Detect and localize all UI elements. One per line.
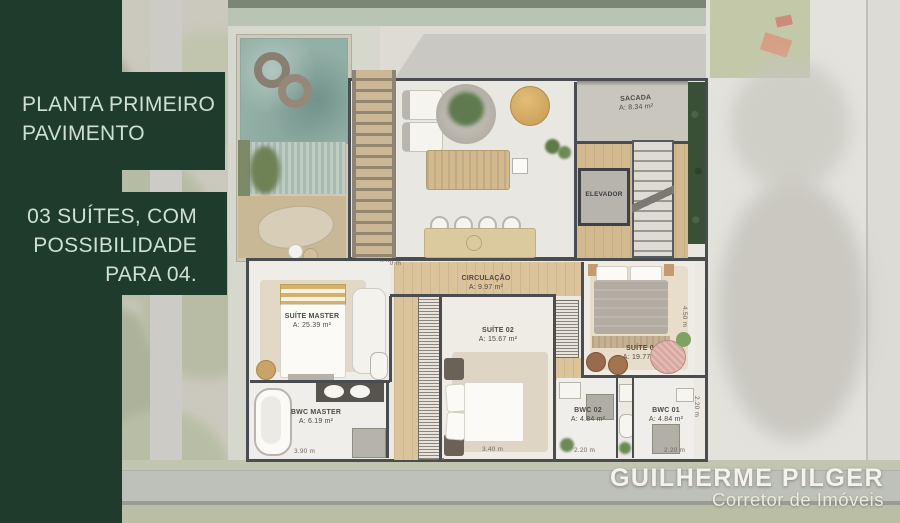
interior-wall	[250, 380, 390, 383]
room-label-circulacao: CIRCULAÇÃO A: 9.97 m²	[452, 274, 520, 292]
branding: GUILHERME PILGER Corretor de Imóveis	[610, 466, 884, 510]
room-name: SUÍTE MASTER	[282, 312, 342, 321]
headboard-table	[664, 264, 674, 276]
room-area: A: 15.67 m²	[468, 335, 528, 344]
nightstand	[444, 358, 464, 380]
bed	[464, 382, 524, 442]
sink	[350, 385, 370, 398]
interior-wall	[389, 296, 392, 382]
interior-wall	[616, 378, 618, 458]
room-name: CIRCULAÇÃO	[452, 274, 520, 283]
lounge-chair	[402, 122, 443, 152]
floor-plan-marketing-image: SACADA A: 8.34 m² ELEVADOR CIRCULAÇÃO A:…	[0, 0, 900, 523]
pergola-deck	[352, 70, 396, 260]
dimension-label: 3.90 m	[294, 448, 315, 455]
dimension-label: 2.20 m	[574, 447, 595, 454]
sink	[324, 385, 344, 398]
broker-name: GUILHERME PILGER	[610, 466, 884, 490]
plant	[250, 146, 280, 194]
dimension-label: 3.40 m	[482, 446, 503, 453]
plant	[560, 438, 574, 452]
bwc-corridor	[555, 358, 583, 380]
room-area: A: 4.84 m²	[566, 415, 610, 424]
pool-float-ring	[278, 74, 312, 108]
room-label-bwc-02: BWC 02 A: 4.84 m²	[566, 406, 610, 424]
sink	[559, 382, 581, 399]
sacada-railing	[577, 81, 688, 86]
floor-plan: SACADA A: 8.34 m² ELEVADOR CIRCULAÇÃO A:…	[0, 0, 900, 523]
interior-wall	[386, 382, 389, 458]
elevator-label: ELEVADOR	[580, 190, 628, 199]
side-appliance	[512, 158, 528, 174]
room-name: BWC 02	[566, 406, 610, 415]
room-name: SUÍTE 02	[468, 326, 528, 335]
broker-role: Corretor de Imóveis	[610, 490, 884, 510]
interior-wall	[632, 378, 634, 458]
island-sink	[466, 235, 482, 251]
interior-wall	[390, 294, 556, 297]
closet-corridor	[394, 296, 418, 460]
pouf	[586, 352, 606, 372]
shower	[352, 428, 386, 458]
room-label-bwc-01: BWC 01 A: 4.84 m²	[644, 406, 688, 424]
interior-wall	[439, 296, 442, 460]
pouf	[256, 360, 276, 380]
hedge-strip	[688, 82, 705, 244]
plant	[619, 442, 631, 454]
dimension-label: 2.20 m	[693, 396, 700, 417]
interior-wall	[553, 296, 556, 460]
round-table	[510, 86, 550, 126]
toilet	[370, 352, 388, 380]
bed-duvet	[594, 280, 668, 334]
stair-break-line	[632, 140, 674, 258]
indoor-plant	[448, 92, 484, 126]
sink	[676, 388, 694, 402]
room-area: A: 9.97 m²	[452, 283, 520, 292]
wardrobe	[555, 300, 579, 358]
pouf	[608, 355, 628, 375]
room-area: A: 25.39 m²	[282, 321, 342, 330]
room-area: A: 4.84 m²	[644, 415, 688, 424]
dimension-label: 2.20 m	[664, 447, 685, 454]
room-name: BWC MASTER	[288, 408, 344, 417]
bathtub-inner	[261, 396, 281, 444]
wall-plant	[558, 146, 571, 159]
room-name: BWC 01	[644, 406, 688, 415]
interior-wall	[581, 262, 584, 378]
side-table	[288, 244, 303, 259]
chair	[676, 332, 691, 347]
room-label-bwc-master: BWC MASTER A: 6.19 m²	[288, 408, 344, 426]
dimension-label: 4.50 m	[681, 306, 688, 327]
sofa	[426, 150, 510, 190]
room-label-suite-02: SUÍTE 02 A: 15.67 m²	[468, 326, 528, 344]
interior-wall	[583, 375, 705, 378]
room-label-suite-master: SUÍTE MASTER A: 25.39 m²	[282, 312, 342, 330]
room-area: A: 6.19 m²	[288, 417, 344, 426]
room-name: ELEVADOR	[580, 190, 628, 199]
